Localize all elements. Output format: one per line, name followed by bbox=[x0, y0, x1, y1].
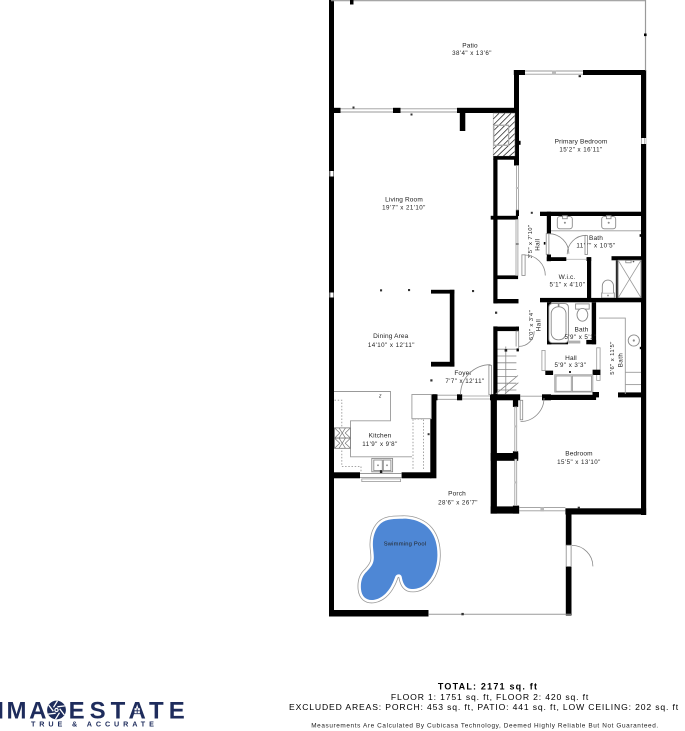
svg-text:19'7" x 21'10": 19'7" x 21'10" bbox=[382, 205, 426, 212]
svg-text:Porch: Porch bbox=[448, 491, 466, 498]
svg-text:FLOOR 1: 1751 sq. ft, FLOOR 2:: FLOOR 1: 1751 sq. ft, FLOOR 2: 420 sq. f… bbox=[391, 692, 589, 702]
svg-text:5'6" x 11'5": 5'6" x 11'5" bbox=[610, 341, 616, 374]
svg-text:3'5" x 7'10": 3'5" x 7'10" bbox=[528, 225, 534, 259]
svg-text:Bath: Bath bbox=[575, 327, 589, 334]
svg-text:5'9" x 5'1": 5'9" x 5'1" bbox=[564, 334, 596, 341]
svg-text:Hall: Hall bbox=[565, 355, 577, 362]
svg-text:Bath: Bath bbox=[589, 235, 603, 242]
svg-text:Measurements Are Calculated By: Measurements Are Calculated By Cubicasa … bbox=[311, 723, 659, 730]
svg-text:Living Room: Living Room bbox=[385, 197, 423, 204]
svg-text:Hall: Hall bbox=[536, 319, 543, 331]
svg-text:Dining Area: Dining Area bbox=[373, 333, 408, 340]
svg-text:15'2" x 16'11": 15'2" x 16'11" bbox=[559, 147, 602, 154]
svg-text:Bath: Bath bbox=[618, 353, 625, 368]
svg-text:38'4" x 13'6": 38'4" x 13'6" bbox=[452, 50, 492, 57]
svg-text:Kitchen: Kitchen bbox=[369, 433, 392, 440]
svg-text:Hall: Hall bbox=[535, 238, 542, 250]
svg-text:TRUE & ACCURATE: TRUE & ACCURATE bbox=[31, 720, 158, 729]
svg-text:5'1" x 4'10": 5'1" x 4'10" bbox=[550, 282, 586, 289]
svg-text:6'0" x 3'4": 6'0" x 3'4" bbox=[529, 310, 535, 340]
svg-text:5'9" x 3'3": 5'9" x 3'3" bbox=[554, 362, 586, 369]
svg-text:11'9" x 9'8": 11'9" x 9'8" bbox=[362, 441, 397, 448]
svg-text:TOTAL: 2171 sq. ft: TOTAL: 2171 sq. ft bbox=[438, 682, 538, 692]
svg-text:EXCLUDED AREAS: PORCH: 453 sq.: EXCLUDED AREAS: PORCH: 453 sq. ft, PATIO… bbox=[289, 702, 679, 712]
svg-text:15'5" x 13'10": 15'5" x 13'10" bbox=[557, 459, 601, 466]
svg-text:14'10" x 12'11": 14'10" x 12'11" bbox=[368, 342, 415, 349]
svg-text:11'7" x 10'5": 11'7" x 10'5" bbox=[576, 243, 615, 250]
svg-text:28'6" x 26'7": 28'6" x 26'7" bbox=[438, 500, 478, 507]
svg-text:Swimming Pool: Swimming Pool bbox=[384, 542, 427, 548]
svg-text:W.i.c.: W.i.c. bbox=[559, 274, 576, 281]
svg-text:Primary Bedroom: Primary Bedroom bbox=[555, 139, 608, 146]
svg-text:Patio: Patio bbox=[462, 43, 478, 50]
svg-text:z: z bbox=[378, 394, 382, 400]
svg-text:Bedroom: Bedroom bbox=[565, 451, 592, 458]
